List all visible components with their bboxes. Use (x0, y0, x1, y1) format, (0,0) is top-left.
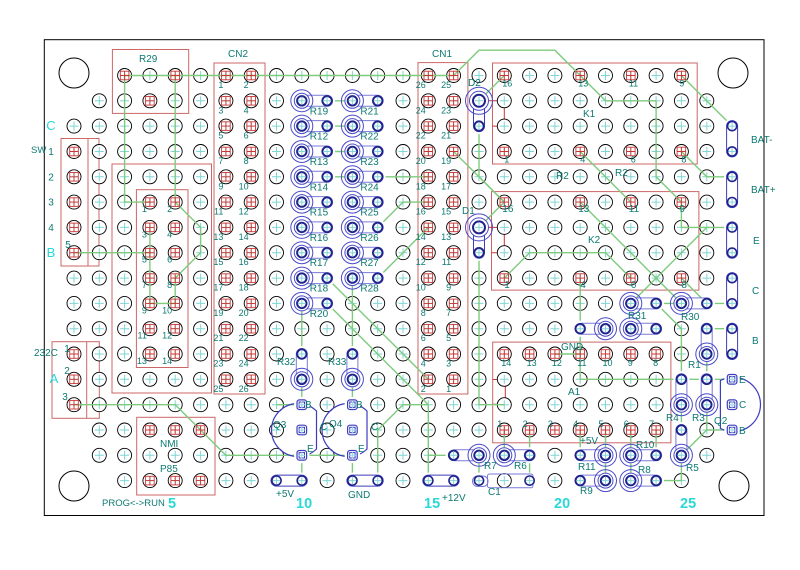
svg-text:10: 10 (416, 283, 426, 293)
svg-text:R3: R3 (692, 413, 705, 424)
svg-text:1: 1 (48, 147, 54, 158)
svg-text:5: 5 (598, 419, 603, 429)
svg-text:R22: R22 (360, 132, 379, 143)
svg-text:6: 6 (421, 333, 426, 343)
svg-text:R20: R20 (310, 309, 329, 320)
svg-text:8: 8 (421, 308, 426, 318)
svg-text:R15: R15 (310, 208, 329, 219)
svg-text:12: 12 (162, 331, 172, 341)
svg-text:12: 12 (552, 358, 562, 368)
svg-text:22: 22 (416, 131, 426, 141)
svg-text:B: B (739, 426, 746, 437)
svg-text:11: 11 (214, 207, 223, 217)
svg-text:BAT-: BAT- (751, 135, 772, 146)
svg-text:13: 13 (578, 79, 588, 89)
svg-text:E: E (307, 444, 314, 455)
svg-text:3: 3 (218, 105, 223, 115)
svg-text:7: 7 (142, 280, 147, 290)
svg-text:12: 12 (239, 207, 249, 217)
svg-text:25: 25 (680, 496, 696, 512)
svg-text:19: 19 (213, 308, 223, 318)
svg-text:R28: R28 (360, 284, 379, 295)
svg-text:9: 9 (679, 204, 685, 215)
svg-text:R25: R25 (360, 208, 379, 219)
svg-text:14: 14 (416, 232, 426, 242)
svg-text:18: 18 (416, 181, 426, 191)
svg-text:14: 14 (501, 358, 511, 368)
svg-text:R10: R10 (636, 440, 655, 451)
svg-text:5: 5 (65, 240, 71, 251)
svg-text:14: 14 (162, 356, 172, 366)
svg-text:C: C (752, 286, 759, 297)
svg-text:1: 1 (446, 384, 451, 394)
svg-text:10: 10 (603, 358, 613, 368)
svg-text:7: 7 (649, 419, 654, 429)
svg-text:12: 12 (416, 257, 426, 267)
svg-text:R4: R4 (666, 413, 679, 424)
svg-text:R11: R11 (578, 462, 596, 473)
svg-text:5: 5 (218, 131, 223, 141)
svg-text:A1: A1 (568, 387, 581, 398)
svg-text:9: 9 (218, 181, 223, 191)
svg-text:C1: C1 (488, 487, 501, 498)
svg-text:R16: R16 (310, 233, 329, 244)
svg-text:R32: R32 (277, 357, 296, 368)
svg-text:25: 25 (213, 384, 223, 394)
svg-text:20: 20 (554, 496, 570, 512)
svg-text:R17: R17 (310, 258, 329, 269)
svg-text:8: 8 (244, 156, 249, 166)
svg-text:B: B (752, 336, 759, 347)
svg-text:2: 2 (64, 366, 70, 377)
svg-text:C: C (320, 422, 327, 433)
svg-text:D2: D2 (468, 78, 481, 89)
svg-text:R29: R29 (139, 54, 158, 65)
svg-text:11: 11 (629, 204, 640, 215)
svg-text:1: 1 (497, 419, 502, 429)
svg-text:16: 16 (502, 79, 512, 89)
svg-text:R8: R8 (638, 465, 651, 476)
svg-text:3: 3 (548, 419, 553, 429)
svg-text:7: 7 (446, 308, 451, 318)
svg-text:8: 8 (167, 280, 172, 290)
svg-text:13: 13 (527, 358, 537, 368)
svg-text:+5V: +5V (580, 436, 598, 447)
svg-text:6: 6 (167, 255, 172, 265)
svg-text:NMI: NMI (160, 439, 178, 450)
svg-text:P85: P85 (160, 464, 178, 475)
svg-text:17: 17 (213, 283, 223, 293)
svg-text:2: 2 (523, 419, 528, 429)
svg-text:1: 1 (218, 80, 223, 90)
svg-text:R26: R26 (360, 233, 379, 244)
svg-text:E: E (753, 236, 760, 247)
svg-text:8: 8 (681, 155, 686, 165)
svg-text:6: 6 (244, 131, 249, 141)
svg-text:232C: 232C (34, 348, 58, 359)
svg-text:R18: R18 (310, 284, 329, 295)
svg-text:R24: R24 (360, 182, 379, 193)
svg-text:4: 4 (580, 155, 585, 165)
svg-text:R30: R30 (681, 312, 700, 323)
svg-text:13: 13 (213, 232, 223, 242)
svg-text:1: 1 (64, 344, 70, 355)
svg-text:E: E (739, 375, 746, 386)
svg-text:25: 25 (441, 80, 451, 90)
svg-text:R27: R27 (360, 258, 379, 269)
svg-text:4: 4 (167, 229, 172, 239)
svg-text:C: C (371, 422, 378, 433)
svg-text:21: 21 (213, 333, 223, 343)
svg-text:6: 6 (631, 155, 636, 165)
svg-text:SW: SW (31, 145, 46, 156)
svg-text:10: 10 (162, 305, 172, 315)
svg-text:4: 4 (421, 359, 426, 369)
svg-text:K2: K2 (588, 235, 601, 246)
svg-text:7: 7 (218, 156, 223, 166)
svg-text:R14: R14 (310, 182, 329, 193)
svg-text:C: C (739, 400, 746, 411)
svg-text:R5: R5 (686, 463, 699, 474)
svg-text:21: 21 (441, 131, 451, 141)
svg-text:1: 1 (504, 155, 509, 165)
svg-text:11: 11 (138, 331, 147, 341)
svg-text:15: 15 (424, 496, 440, 512)
svg-text:3: 3 (62, 392, 68, 403)
svg-text:Q4: Q4 (329, 419, 343, 430)
svg-text:B: B (356, 400, 363, 411)
svg-text:11: 11 (442, 257, 451, 267)
svg-text:R2: R2 (615, 168, 628, 179)
svg-text:20: 20 (416, 156, 426, 166)
svg-text:16: 16 (416, 207, 426, 217)
svg-text:14: 14 (239, 232, 249, 242)
svg-text:D1: D1 (462, 206, 475, 217)
svg-text:3: 3 (48, 198, 54, 209)
svg-text:9: 9 (446, 283, 451, 293)
svg-text:GND: GND (561, 342, 583, 353)
svg-text:CN1: CN1 (432, 49, 452, 60)
svg-text:K1: K1 (583, 109, 596, 120)
svg-text:2: 2 (167, 204, 172, 214)
svg-text:C: C (46, 118, 55, 133)
svg-text:6: 6 (631, 280, 637, 291)
svg-text:5: 5 (446, 333, 451, 343)
svg-text:26: 26 (239, 384, 249, 394)
svg-text:R6: R6 (514, 461, 527, 472)
svg-text:18: 18 (239, 283, 249, 293)
svg-text:17: 17 (441, 181, 451, 191)
svg-text:4: 4 (48, 223, 54, 234)
svg-text:R1: R1 (688, 360, 701, 371)
svg-text:Q3: Q3 (273, 420, 287, 431)
svg-text:10: 10 (239, 181, 249, 191)
svg-text:Q2: Q2 (714, 416, 728, 427)
svg-text:15: 15 (441, 207, 451, 217)
svg-text:R7: R7 (484, 461, 497, 472)
svg-text:20: 20 (239, 308, 249, 318)
svg-text:13: 13 (578, 204, 590, 215)
svg-text:9: 9 (142, 305, 147, 315)
svg-text:R33: R33 (328, 357, 347, 368)
svg-text:16: 16 (502, 204, 514, 215)
svg-text:5: 5 (168, 496, 176, 512)
svg-text:24: 24 (416, 105, 426, 115)
svg-text:2: 2 (421, 384, 426, 394)
svg-text:22: 22 (239, 333, 249, 343)
svg-text:26: 26 (416, 80, 426, 90)
svg-text:3: 3 (142, 229, 147, 239)
svg-text:10: 10 (296, 496, 312, 512)
svg-text:E: E (358, 444, 365, 455)
svg-text:13: 13 (137, 356, 147, 366)
svg-text:A: A (50, 371, 59, 386)
svg-text:R21: R21 (360, 106, 379, 117)
svg-text:9: 9 (679, 79, 684, 89)
svg-text:16: 16 (239, 257, 249, 267)
svg-text:R9: R9 (580, 486, 593, 497)
svg-text:+5V: +5V (276, 489, 294, 500)
svg-text:11: 11 (577, 358, 586, 368)
svg-text:PROG<->RUN: PROG<->RUN (102, 498, 165, 509)
svg-text:23: 23 (213, 359, 223, 369)
svg-text:R2: R2 (556, 171, 569, 182)
svg-text:BAT+: BAT+ (751, 185, 776, 196)
svg-text:R13: R13 (310, 157, 329, 168)
svg-text:8: 8 (681, 280, 687, 291)
svg-text:6: 6 (624, 419, 629, 429)
svg-text:9: 9 (628, 358, 633, 368)
svg-text:4: 4 (573, 419, 578, 429)
svg-text:1: 1 (504, 280, 510, 291)
svg-text:4: 4 (580, 280, 586, 291)
svg-text:2: 2 (48, 172, 54, 183)
svg-text:R31: R31 (628, 311, 647, 322)
svg-text:1: 1 (142, 204, 147, 214)
svg-text:8: 8 (653, 358, 658, 368)
svg-text:CN2: CN2 (228, 49, 248, 60)
svg-text:B: B (305, 400, 312, 411)
svg-text:2: 2 (244, 80, 249, 90)
svg-text:23: 23 (441, 105, 451, 115)
svg-text:19: 19 (441, 156, 451, 166)
svg-text:R23: R23 (360, 157, 379, 168)
svg-text:15: 15 (213, 257, 223, 267)
svg-text:B: B (47, 245, 56, 260)
svg-text:R19: R19 (310, 106, 329, 117)
svg-text:3: 3 (446, 359, 451, 369)
svg-text:11: 11 (629, 79, 638, 89)
svg-text:5: 5 (142, 255, 147, 265)
svg-text:13: 13 (441, 232, 451, 242)
svg-text:+12V: +12V (442, 493, 466, 504)
svg-text:4: 4 (244, 105, 249, 115)
svg-text:R12: R12 (310, 132, 329, 143)
svg-text:GND: GND (348, 490, 370, 501)
svg-text:24: 24 (239, 359, 249, 369)
